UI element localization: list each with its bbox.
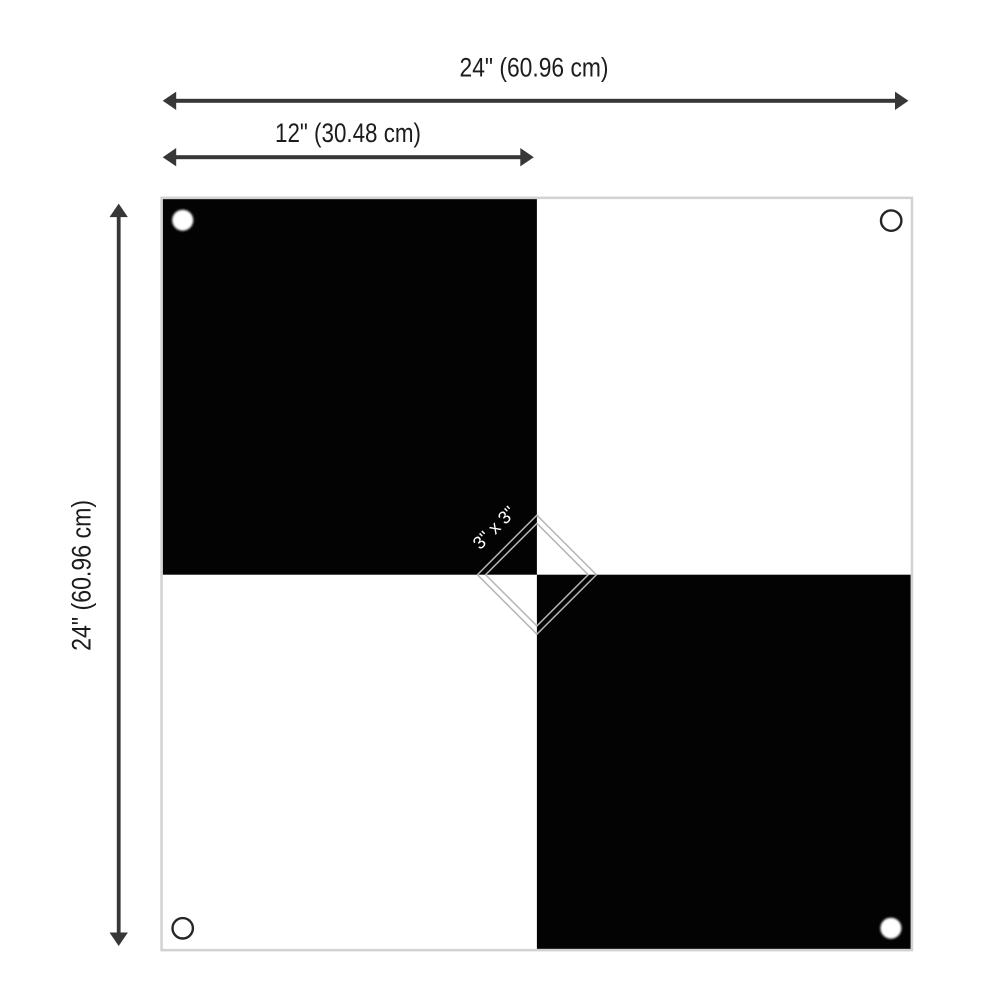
svg-text:12" (30.48 cm): 12" (30.48 cm) bbox=[275, 118, 421, 148]
svg-text:24" (60.96 cm): 24" (60.96 cm) bbox=[460, 53, 609, 83]
svg-text:24" (60.96 cm): 24" (60.96 cm) bbox=[67, 500, 97, 651]
